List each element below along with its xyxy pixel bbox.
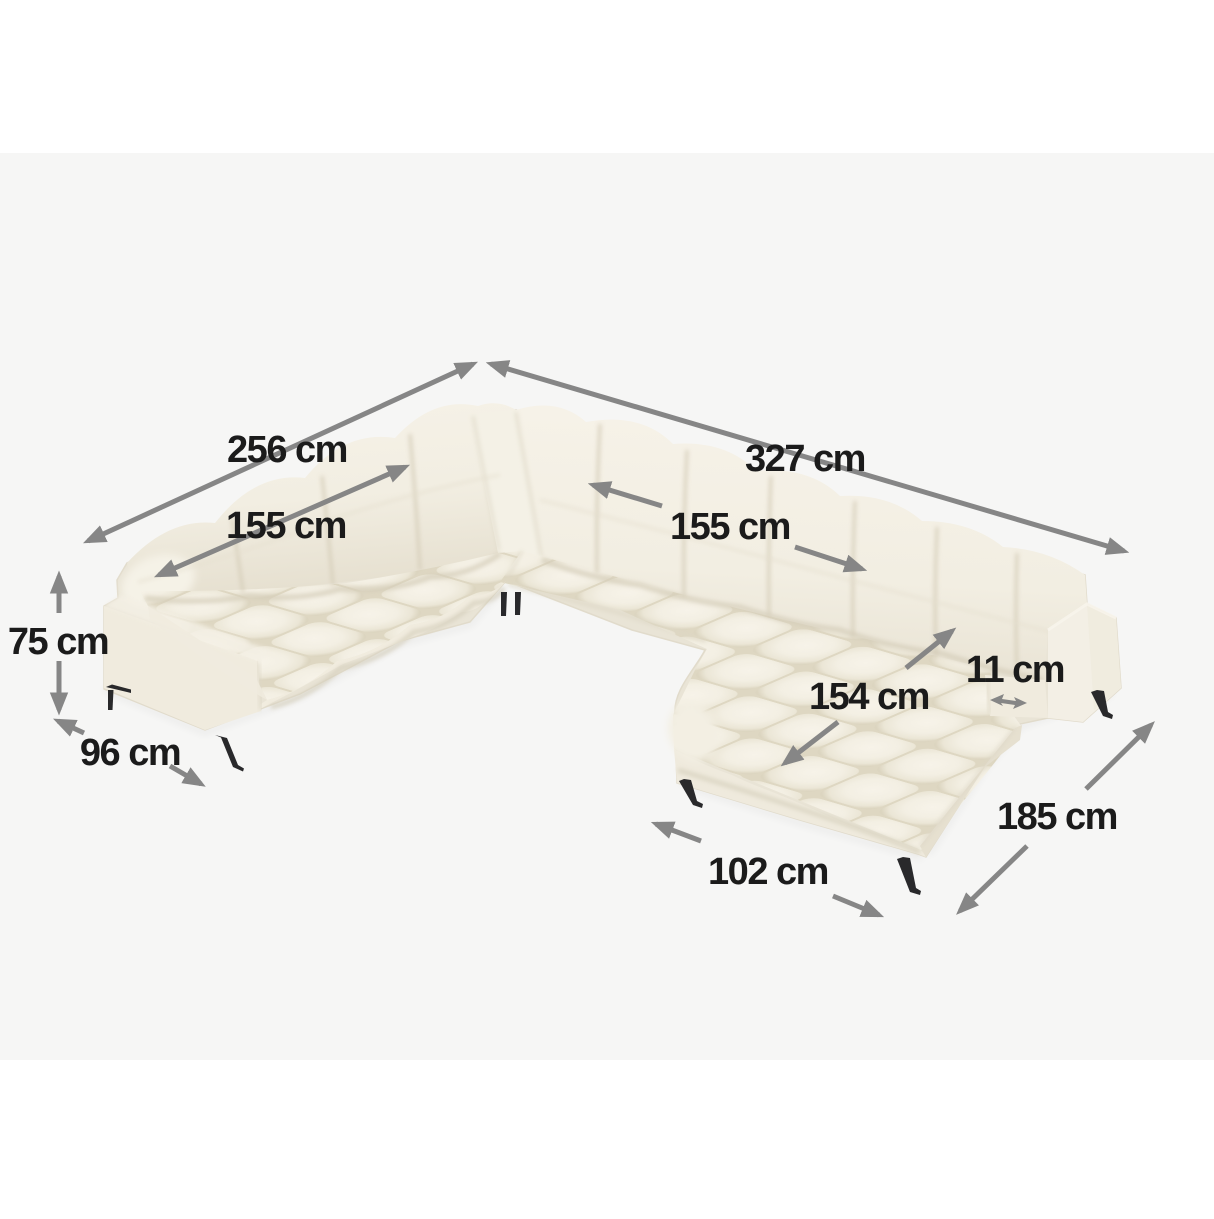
svg-text:256 cm: 256 cm [227,429,347,471]
svg-text:155 cm: 155 cm [670,506,790,548]
svg-text:327 cm: 327 cm [745,438,865,480]
svg-text:11 cm: 11 cm [966,649,1064,691]
svg-text:154 cm: 154 cm [809,676,929,718]
svg-text:102 cm: 102 cm [708,851,828,893]
svg-text:75 cm: 75 cm [8,621,108,663]
svg-text:155 cm: 155 cm [226,505,346,547]
svg-text:96 cm: 96 cm [80,732,180,774]
svg-text:185 cm: 185 cm [997,796,1117,838]
